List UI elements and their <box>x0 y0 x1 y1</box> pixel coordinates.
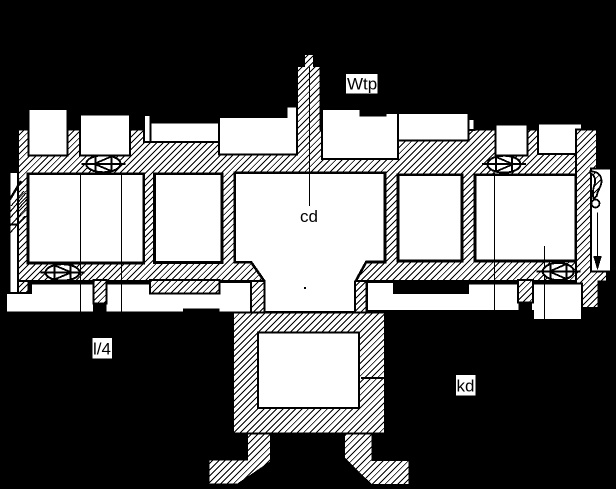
svg-text:Wtp: Wtp <box>347 75 377 94</box>
svg-text:l/4: l/4 <box>93 340 111 359</box>
svg-text:kd: kd <box>457 377 475 396</box>
svg-text:cd: cd <box>300 207 318 226</box>
